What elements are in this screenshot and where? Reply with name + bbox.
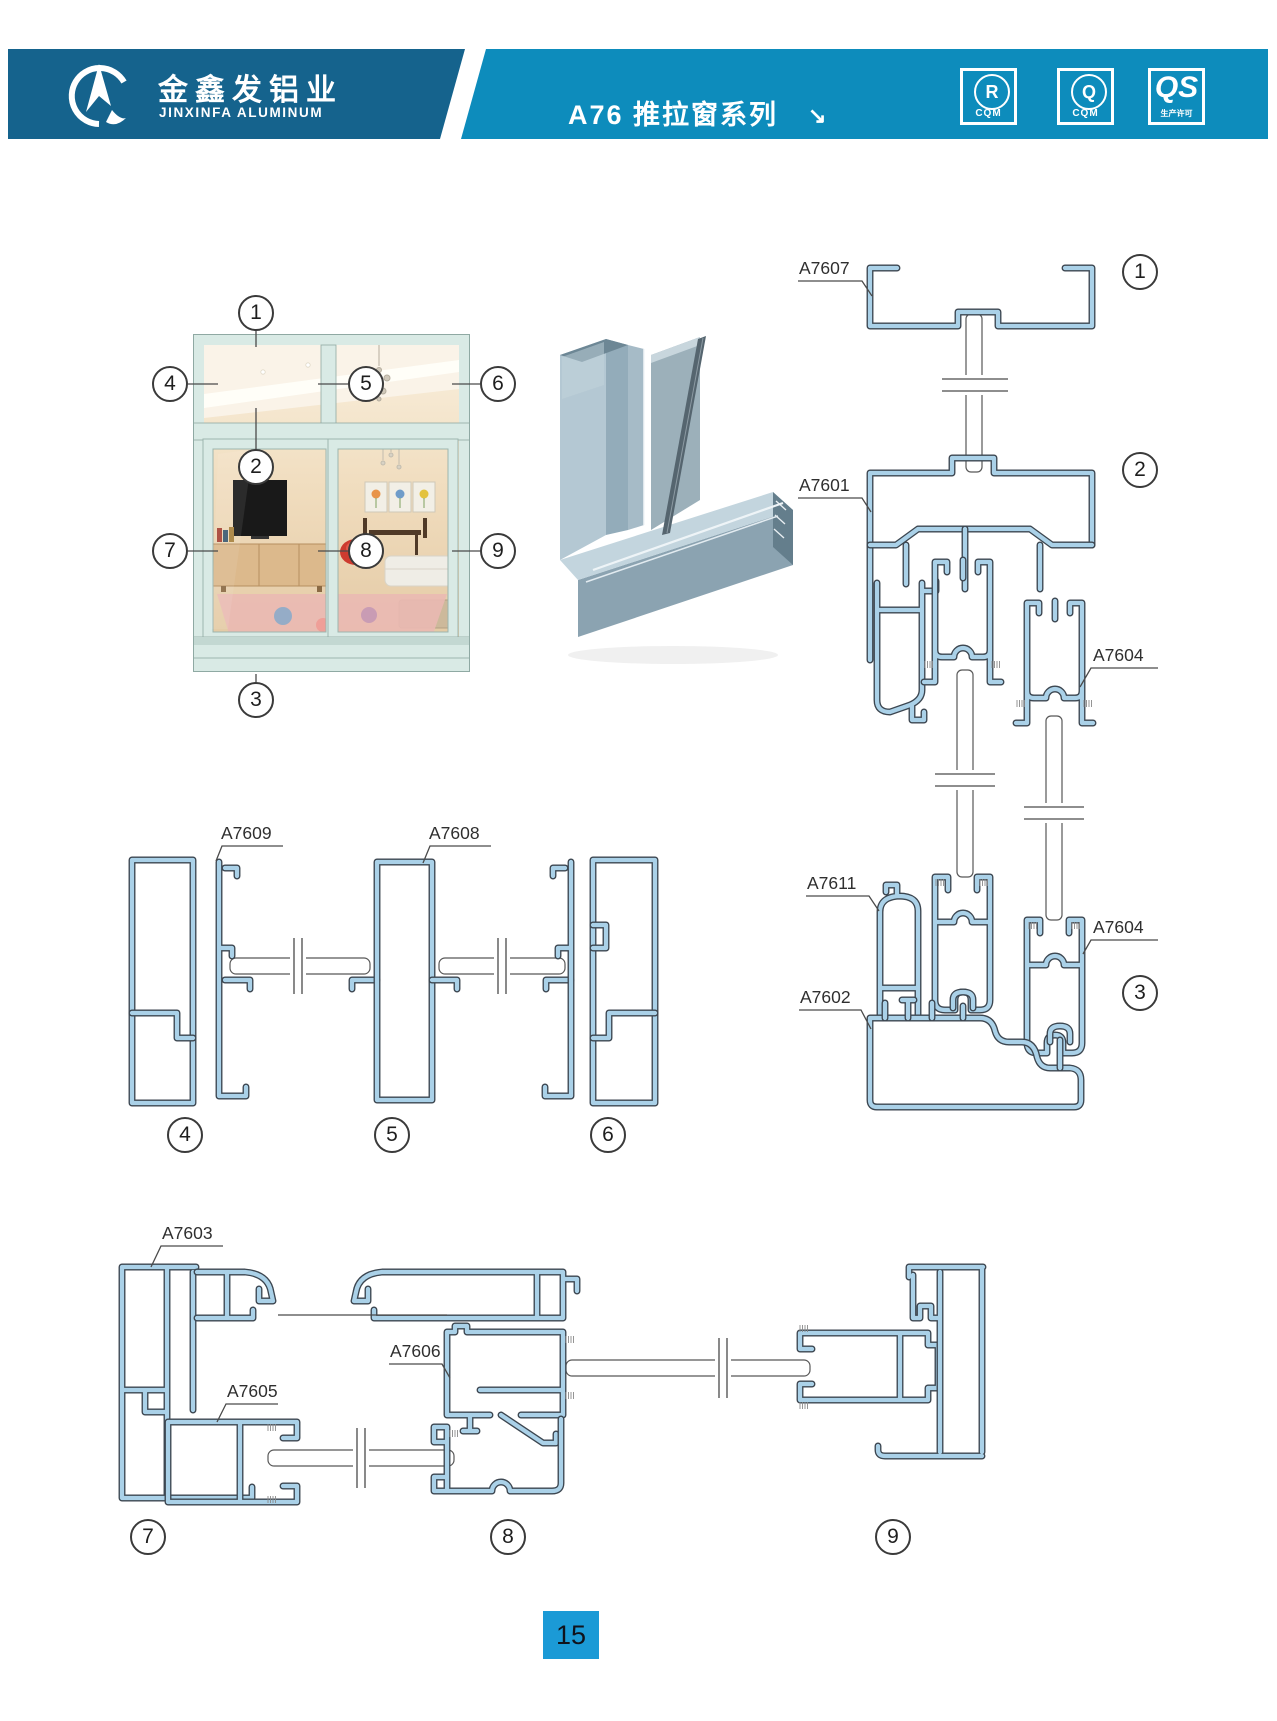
callout-5: 5 [348, 366, 384, 402]
callout-2: 2 [238, 449, 274, 485]
technical-sections-drawing [0, 0, 1277, 1721]
label-a7609: A7609 [221, 823, 272, 844]
badge-sub: CQM [1060, 108, 1111, 119]
section-callout-1: 1 [1122, 254, 1158, 290]
window-photo [193, 334, 470, 672]
company-logo-icon [66, 60, 132, 130]
callout-7: 7 [152, 533, 188, 569]
label-a7603: A7603 [162, 1223, 213, 1244]
label-a7604-top: A7604 [1093, 645, 1144, 666]
label-a7605: A7605 [227, 1381, 278, 1402]
badge-letter: QS [1151, 71, 1202, 105]
label-a7606: A7606 [390, 1341, 441, 1362]
cqm-q-badge-icon: Q CQM [1057, 68, 1114, 125]
badge-sub: CQM [963, 108, 1014, 119]
badge-sub: 生产许可 [1151, 108, 1202, 119]
page-number: 15 [543, 1611, 599, 1659]
section-callout-4: 4 [167, 1117, 203, 1153]
label-a7607: A7607 [799, 258, 850, 279]
section-callout-5: 5 [374, 1117, 410, 1153]
callout-3: 3 [238, 682, 274, 718]
section-callout-6: 6 [590, 1117, 626, 1153]
horizontal-top-profiles [132, 860, 655, 1103]
profile-3d-render [548, 325, 798, 670]
section-callout-9: 9 [875, 1519, 911, 1555]
vertical-assembly-profiles [870, 268, 1093, 1107]
label-a7611: A7611 [807, 873, 856, 894]
arrow-down-right-icon: ↘ [808, 103, 826, 129]
catalog-page: 金鑫发铝业 JINXINFA ALUMINUM A76 推拉窗系列 ↘ R CQ… [0, 0, 1277, 1721]
label-a7608: A7608 [429, 823, 480, 844]
badge-letter: R [974, 74, 1010, 110]
section-callout-8: 8 [490, 1519, 526, 1555]
header-bar: 金鑫发铝业 JINXINFA ALUMINUM A76 推拉窗系列 ↘ R CQ… [8, 49, 1268, 139]
series-title: A76 推拉窗系列 [568, 93, 798, 132]
company-name-en: JINXINFA ALUMINUM [159, 105, 323, 120]
label-a7602: A7602 [800, 987, 851, 1008]
callout-9: 9 [480, 533, 516, 569]
section-callout-7: 7 [130, 1519, 166, 1555]
cqm-r-badge-icon: R CQM [960, 68, 1017, 125]
sofa [385, 556, 457, 586]
callout-8: 8 [348, 533, 384, 569]
callout-6: 6 [480, 366, 516, 402]
label-a7604-bottom: A7604 [1093, 917, 1144, 938]
section-callout-3: 3 [1122, 975, 1158, 1011]
company-name-cn: 金鑫发铝业 [158, 65, 343, 109]
callout-1: 1 [238, 295, 274, 331]
section-callout-2: 2 [1122, 452, 1158, 488]
label-a7601: A7601 [799, 475, 850, 496]
badge-letter: Q [1071, 74, 1107, 110]
paintings [365, 482, 435, 512]
qs-badge-icon: QS 生产许可 [1148, 68, 1205, 125]
callout-4: 4 [152, 366, 188, 402]
